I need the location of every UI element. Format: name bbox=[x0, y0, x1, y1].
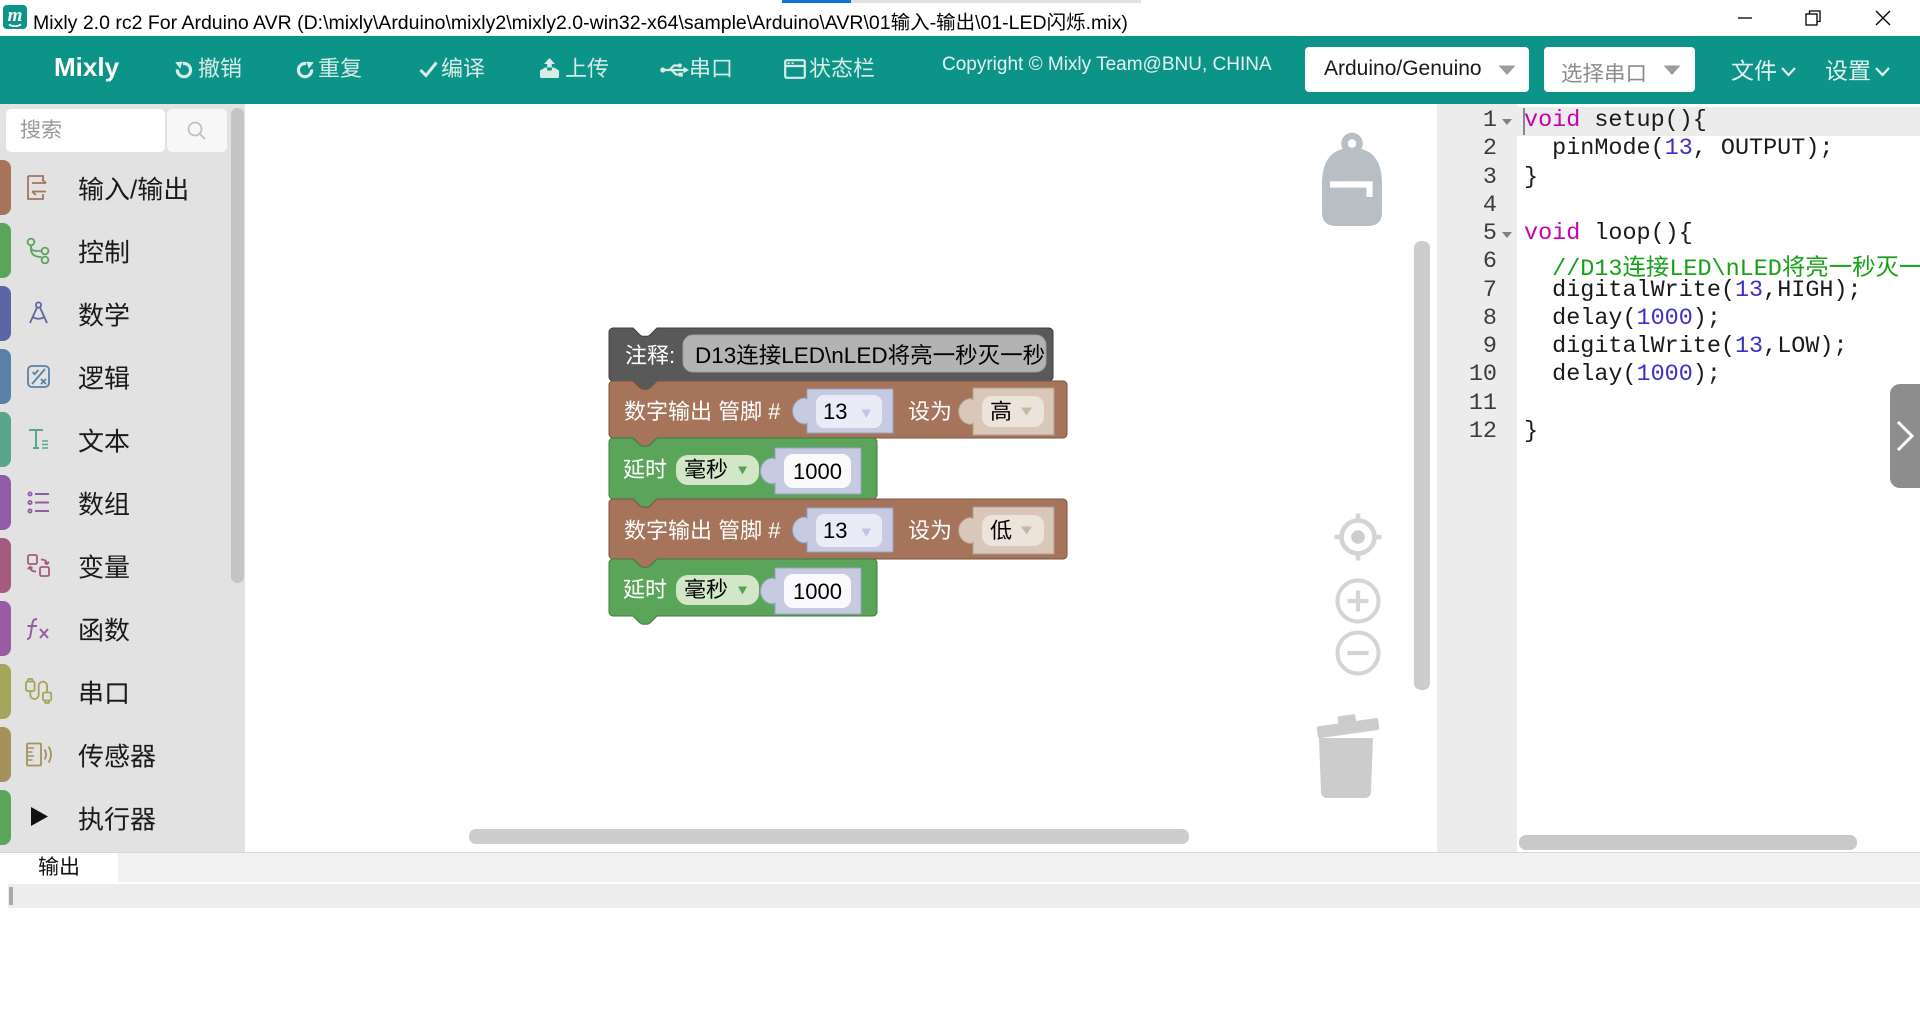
svg-text:13: 13 bbox=[823, 399, 847, 424]
svg-text:数字输出 管脚 #: 数字输出 管脚 # bbox=[624, 518, 781, 543]
svg-text:13: 13 bbox=[823, 518, 847, 543]
svg-text:D13连接LED\nLED将亮一秒灭一秒: D13连接LED\nLED将亮一秒灭一秒 bbox=[695, 343, 1045, 368]
svg-text:毫秒: 毫秒 bbox=[684, 457, 728, 482]
svg-text:高: 高 bbox=[990, 399, 1012, 424]
svg-text:数字输出 管脚 #: 数字输出 管脚 # bbox=[624, 399, 781, 424]
svg-text:注释:: 注释: bbox=[625, 343, 675, 368]
svg-text:1000: 1000 bbox=[793, 579, 842, 604]
svg-text:1000: 1000 bbox=[793, 459, 842, 484]
svg-text:毫秒: 毫秒 bbox=[684, 577, 728, 602]
svg-text:m: m bbox=[8, 5, 23, 26]
svg-text:延时: 延时 bbox=[623, 577, 667, 602]
svg-text:延时: 延时 bbox=[623, 457, 667, 482]
svg-text:设为: 设为 bbox=[908, 518, 952, 543]
svg-text:设为: 设为 bbox=[908, 399, 952, 424]
svg-text:低: 低 bbox=[990, 518, 1012, 543]
